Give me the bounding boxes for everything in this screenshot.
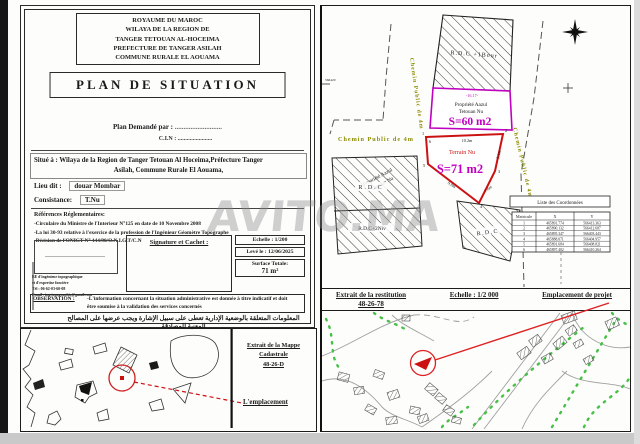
- column-header: X: [553, 214, 556, 219]
- coordinates-table: Liste des Coordonnées Matricule X Y 1 46…: [510, 196, 610, 284]
- project-marker-triangle-icon: [414, 357, 432, 370]
- lieu-dit-value: douar Mombar: [69, 181, 125, 191]
- road-label-right-vertical: Chemin Public de 4m: [511, 127, 533, 199]
- signature-label: Signature et Cachet :: [150, 239, 209, 246]
- cell: 2: [523, 227, 525, 231]
- requested-by-value: ...........................: [175, 123, 222, 131]
- header-line: COMMUNE RURALE EL AOUAMA: [77, 53, 259, 62]
- scale-cell: Echelle : 1/200 Levé le : 12/06/2025 Sur…: [235, 235, 305, 292]
- right-column: 566420 R.D.C +1Bour -16.17- Propriété Aa…: [320, 5, 631, 432]
- header-line: PREFECTURE DE TANGER ASILAH: [77, 44, 259, 53]
- cin-label: C.I.N :: [159, 136, 177, 142]
- dimension-label: 5.4m: [495, 149, 502, 159]
- cell: 1: [523, 221, 525, 225]
- cell: 566403.443: [583, 232, 601, 236]
- cell: 465897.402: [546, 248, 564, 252]
- cadastral-dot: [81, 399, 84, 402]
- caption-strip: Extrait de la restitution 48-26-78 Echel…: [322, 288, 630, 311]
- grid-coordinate-label: 566420: [325, 78, 336, 82]
- signature-scale-row: BE d'ingénieur topographique et d'expert…: [30, 235, 305, 292]
- cell: 566408.821: [583, 243, 601, 247]
- cell: 5: [523, 243, 525, 247]
- scan-edge-right: [634, 0, 640, 444]
- vertex-number: 3: [498, 169, 500, 174]
- dimension-label: 10.2m: [462, 138, 473, 143]
- project-location-caption: Emplacement de projet: [542, 291, 612, 300]
- situation-plan-form: ROYAUME DU MAROC WILAYA DE LA REGION DE …: [20, 5, 315, 328]
- document-title: PLAN DE SITUATION: [49, 72, 286, 98]
- parcel-rdc-left-label: R.D.C: [358, 185, 383, 191]
- requested-by-line: Plan Demandé par : .....................…: [21, 123, 314, 131]
- stamp-microtext: [45, 256, 105, 257]
- lieu-dit-line: Lieu dit : douar Mombar: [34, 182, 125, 190]
- location-block: Situé à : Wilaya de la Region de Tanger …: [30, 153, 307, 179]
- consistance-value: T.Nu: [80, 195, 105, 205]
- parcel-71m2-type: Terrain Nu: [449, 150, 475, 156]
- cell: 566412.687: [583, 227, 601, 231]
- road-label-left-horizontal: Chemin Public de 4m: [338, 136, 414, 143]
- location-marker-dot: [120, 376, 124, 380]
- scan-edge-left: [0, 0, 8, 444]
- reference-item: -Circulaire du Ministre de l'Interieur N…: [34, 220, 306, 228]
- cell: 4: [523, 237, 525, 241]
- parcel-71m2-area: S=71 m2: [437, 162, 483, 176]
- vertex-number: 5: [423, 163, 425, 168]
- cadastral-filled-shape: [33, 379, 45, 390]
- restitution-map: [322, 311, 630, 429]
- observation-label: OBSERVATION :: [33, 296, 87, 311]
- scale-caption: Echelle : 1/2 000: [450, 291, 499, 300]
- stamp-box: [34, 240, 118, 274]
- cell: 566404.957: [583, 237, 601, 241]
- observation-line2: être soumise à la validation des service…: [87, 304, 302, 312]
- observation-line1: -L'information concernant la situation a…: [87, 296, 302, 304]
- cell: 465895.347: [546, 232, 564, 236]
- location-line2: Asilah, Commune Rurale El Aouama,: [34, 166, 303, 176]
- consistance-label: Consistance:: [34, 196, 72, 204]
- cell: 465888.071: [546, 237, 564, 241]
- column-header: Y: [590, 214, 593, 219]
- scale-value: Echelle : 1/200: [235, 235, 305, 245]
- scan-edge-bottom: [0, 433, 640, 444]
- restitution-caption: Extrait de la restitution 48-26-78: [336, 291, 406, 309]
- site-plan-drawing: 566420 R.D.C +1Bour -16.17- Propriété Aa…: [322, 6, 630, 288]
- header-line: WILAYA DE LA REGION DE: [77, 25, 259, 34]
- header-line: ROYAUME DU MAROC: [77, 16, 259, 25]
- location-label: L'emplacement: [243, 399, 288, 406]
- cin-value: .......................: [178, 136, 213, 142]
- surface-value: 71 m²: [236, 267, 304, 275]
- cell: 566413.363: [583, 221, 601, 225]
- parcel-60m2-dimension: -16.17-: [466, 93, 479, 98]
- north-star-icon: [562, 19, 588, 45]
- cell: 6: [523, 248, 525, 252]
- administrative-header: ROYAUME DU MAROC WILAYA DE LA REGION DE …: [76, 13, 260, 65]
- road-left-dashed: [330, 24, 391, 134]
- panel-divider: [231, 329, 233, 428]
- cell: 465891.774: [546, 221, 564, 225]
- road-label-left-vertical: Chemin Public de 4m: [408, 57, 424, 129]
- coordinates-table-title: Liste des Coordonnées: [537, 201, 583, 206]
- parcel-rdc-left2-label: R.D.C+2Niv: [358, 226, 386, 232]
- cadastral-title-line1: Extrait de la Mappe Cadastrale: [234, 341, 313, 360]
- location-line1: Situé à : Wilaya de la Region de Tanger …: [34, 156, 303, 166]
- cadastral-extract-box: Extrait de la Mappe Cadastrale 48-26-D L…: [20, 328, 317, 432]
- cell: 566410.264: [583, 248, 601, 252]
- header-line: TANGER TETOUAN AL-HOCEIMA: [77, 35, 259, 44]
- cell: 465891.684: [546, 243, 564, 247]
- vertex-number: 2: [505, 128, 507, 133]
- stamp-cell: BE d'ingénieur topographique et d'expert…: [30, 235, 126, 292]
- observation-row: OBSERVATION : -L'information concernant …: [30, 294, 305, 313]
- cadastral-filled-shape: [149, 361, 159, 370]
- vertex-number: 1: [422, 131, 424, 136]
- total-surface: Surface Totale: 71 m²: [235, 259, 305, 277]
- restitution-caption-line1: Extrait de la restitution: [336, 291, 406, 300]
- consistance-line: Consistance: T.Nu: [34, 196, 105, 204]
- scan-binding-mark: [32, 262, 34, 310]
- cell: 3: [523, 232, 525, 236]
- divider: [31, 150, 304, 151]
- requested-by-label: Plan Demandé par :: [113, 123, 173, 131]
- parcel-60m2-type: Tetouan Nu: [459, 109, 484, 115]
- column-header: Matricule: [516, 214, 532, 219]
- survey-date: Levé le : 12/06/2025: [235, 247, 305, 257]
- cin-line: C.I.N : .......................: [21, 136, 314, 142]
- cadastral-title: Extrait de la Mappe Cadastrale 48-26-D: [234, 341, 313, 369]
- references-title: Références Réglementaires:: [34, 211, 306, 220]
- parcel-60m2-owner: Propriété Aazul: [455, 102, 488, 108]
- signature-cell: Signature et Cachet :: [126, 235, 232, 292]
- restitution-caption-line2: 48-26-78: [336, 300, 406, 309]
- divider: [31, 208, 304, 209]
- parcel-rdc-left: [332, 156, 422, 254]
- cadastral-title-line2: 48-26-D: [234, 360, 313, 369]
- cell: 465890.132: [546, 227, 564, 231]
- parcel-60m2-area: S=60 m2: [449, 116, 492, 128]
- observation-text: -L'information concernant la situation a…: [87, 296, 302, 311]
- lieu-dit-label: Lieu dit :: [34, 182, 62, 190]
